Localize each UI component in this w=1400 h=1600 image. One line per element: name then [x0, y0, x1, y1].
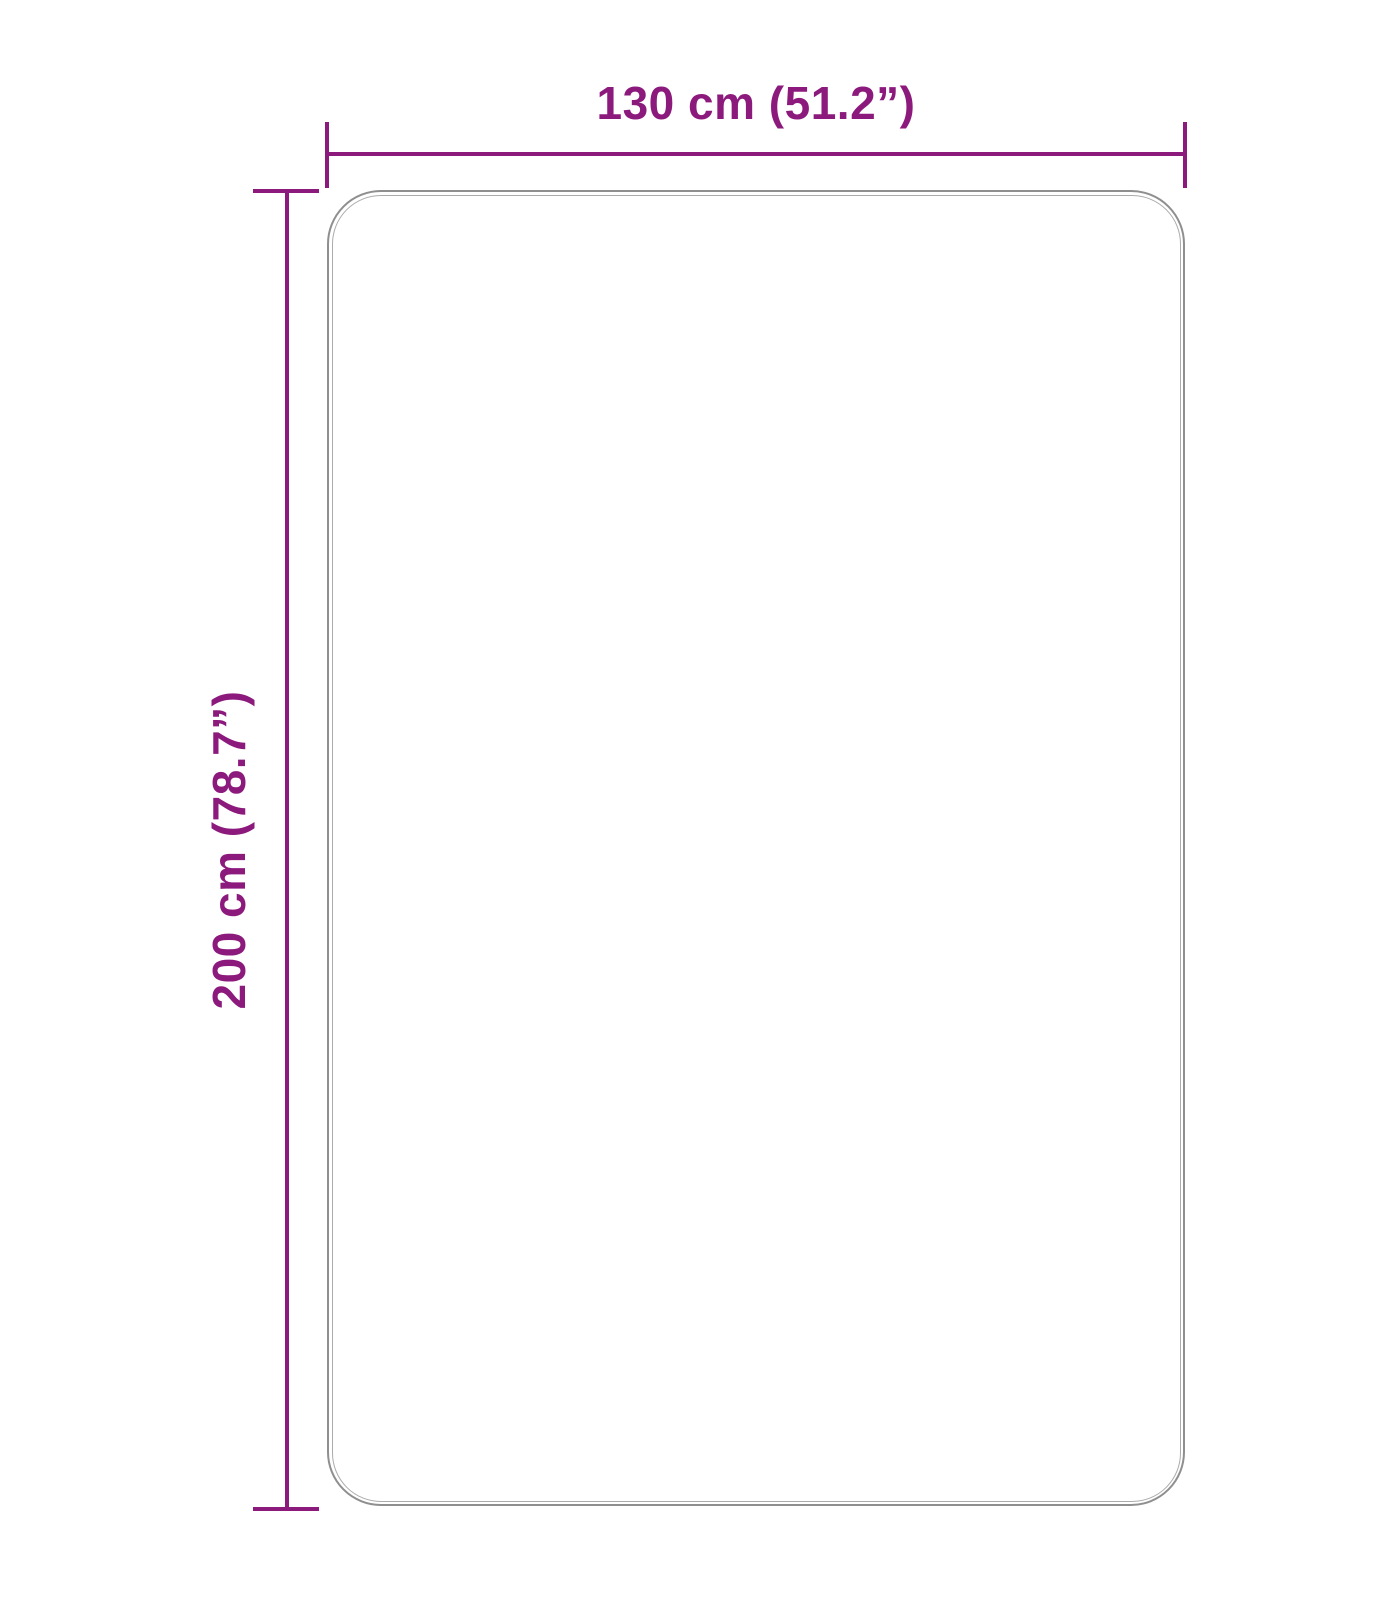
height-dimension-top-tick	[253, 189, 319, 193]
width-dimension-line	[327, 152, 1185, 156]
width-dimension-label: 130 cm (51.2”)	[597, 80, 916, 126]
dimension-diagram: 130 cm (51.2”) 200 cm (78.7”)	[0, 0, 1400, 1600]
height-dimension-bottom-tick	[253, 1507, 319, 1511]
width-dimension-left-tick	[325, 122, 329, 188]
rug-outline	[327, 190, 1185, 1506]
width-dimension-right-tick	[1183, 122, 1187, 188]
height-dimension-label: 200 cm (78.7”)	[206, 691, 252, 1010]
rug-outline-inner-line	[332, 195, 1181, 1502]
height-dimension-line	[285, 191, 289, 1508]
